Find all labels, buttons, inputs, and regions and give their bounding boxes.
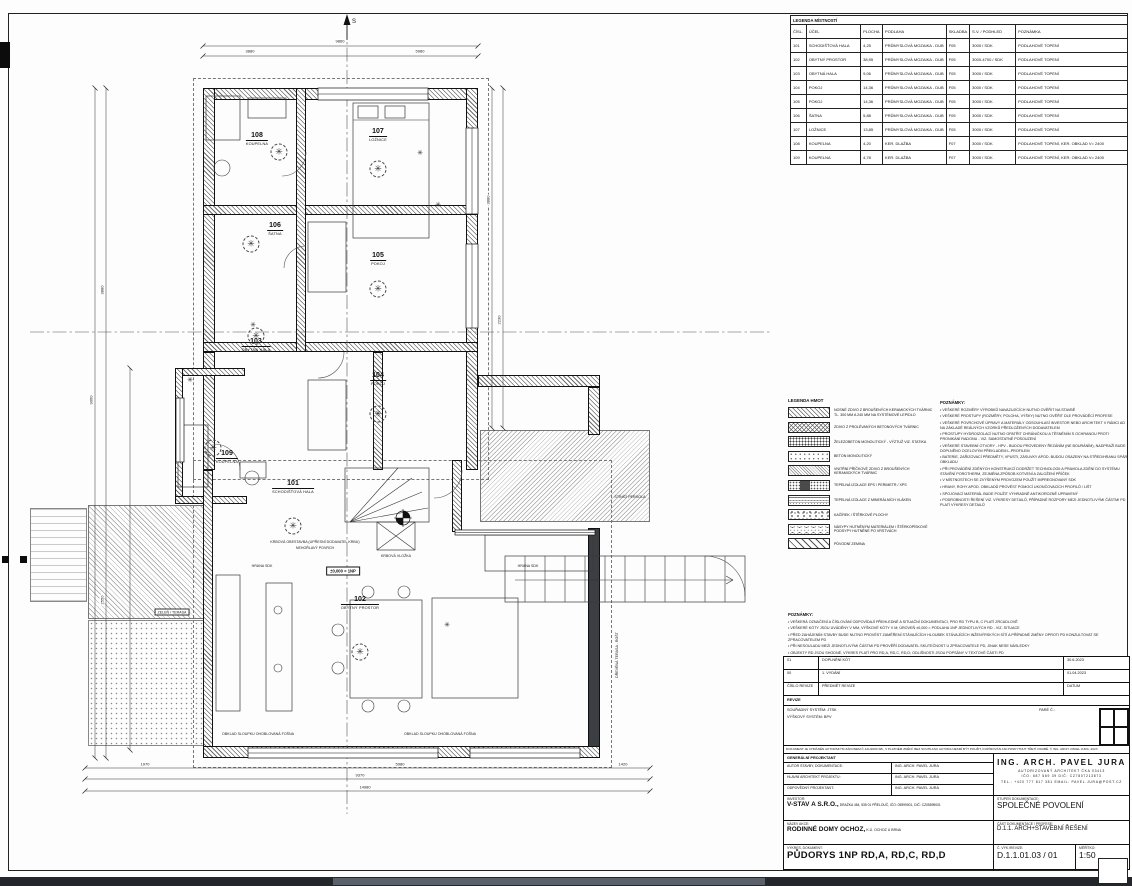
dimension-label: 5980 xyxy=(415,49,426,54)
revision-row: 001. VYDÁNÍ01.04.2023 xyxy=(784,670,1129,683)
legend-cell: PODLAHOVÉ TOPENÍ xyxy=(1016,81,1128,95)
drawing-row: VÝKRES, DOKUMENT: PŮDORYS 1NP RD,A, RD,C… xyxy=(784,845,1129,869)
legend-cell: PODLAHOVÉ TOPENÍ xyxy=(1016,67,1128,81)
legend-cell: PRŮMYSLOVÁ MOZAIKA - DUB xyxy=(883,39,947,53)
role-row: ODPOVĚDNÝ PROJEKTANT:ING. ARCH. PAVEL JU… xyxy=(784,785,994,796)
legend-cell: OBYTNÝ PROSTOR xyxy=(806,53,860,67)
material-legend-item: NÁSYPY HUTNĚNÝM MATERIÁLEM / ŠTĚRKOPÍSKO… xyxy=(788,524,936,535)
architect-title: AUTORIZOVANÝ ARCHITEKT ČKA 03413 xyxy=(997,769,1126,773)
legend-cell: PRŮMYSLOVÁ MOZAIKA - DUB xyxy=(883,67,947,81)
note-line: • PŘI NESOULADU MEZI JEDNOTLIVÝMI ČÁSTMI… xyxy=(788,644,1104,649)
material-label: NÁSYPY HUTNĚNÝM MATERIÁLEM / ŠTĚRKOPÍSKO… xyxy=(834,525,936,534)
room-name: KOUPELNA xyxy=(216,460,238,464)
dimension-label: 9370 xyxy=(355,773,366,778)
corner-box xyxy=(1098,858,1128,884)
room-legend-row: 105POKOJ14,36PRŮMYSLOVÁ MOZAIKA - DUBF05… xyxy=(791,95,1128,109)
legend-cell: F05 xyxy=(946,95,969,109)
legend-cell: SCHODIŠŤOVÁ HALA xyxy=(806,39,860,53)
plan-annotation: OBKLAD SLOUPKU OHOBLOVANÁ FOŠNA xyxy=(404,732,476,736)
architect-ids: IČO: 687 569 39 DIČ: CZ7807213873 xyxy=(997,774,1126,778)
legend-cell: 106 xyxy=(791,109,807,123)
survey-mark xyxy=(20,556,27,563)
dimension-label: 2230 xyxy=(497,315,502,326)
legend-cell: ŠATNA xyxy=(806,109,860,123)
material-legend-item: TEPELNÁ IZOLACE Z MINERÁLNÍCH VLÁKEN xyxy=(788,495,936,506)
architect-contact: TEL.: +420 777 817 381 EMAIL: PAVEL.JURA… xyxy=(997,780,1126,784)
plan-annotation: OBKLAD SLOUPKU OHOBLOVANÁ FOŠNA xyxy=(222,732,294,736)
room-label: 107LOŽNICE xyxy=(369,128,387,142)
legend-cell: PRŮMYSLOVÁ MOZAIKA - DUB xyxy=(883,95,947,109)
legend-cell: 104 xyxy=(791,81,807,95)
legend-cell: PRŮMYSLOVÁ MOZAIKA - DUB xyxy=(883,53,947,67)
role-label: AUTOR STAVBY, DOKUMENTACE: xyxy=(784,763,892,774)
material-label: VNITŘNÍ PŘÍČKOVÉ ZDIVO Z BROUŠENÝCH KERA… xyxy=(834,467,936,476)
coord-system: SOUŘADNÝ SYSTÉM: JTSK xyxy=(787,708,837,712)
material-legend-item: NOSNÉ ZDIVO Z BROUŠENÝCH KERAMICKÝCH TVÁ… xyxy=(788,407,936,418)
legend-cell: PODLAHOVÉ TOPENÍ, KER. OBKLAD V= 2400 xyxy=(1016,137,1128,151)
plan-annotation: STÍNÍCÍ PERGOLA xyxy=(614,495,645,499)
legend-cell: 4,25 xyxy=(861,39,883,53)
role-row: AUTOR STAVBY, DOKUMENTACE:ING. ARCH. PAV… xyxy=(784,763,994,774)
switch-symbol: ✳ xyxy=(250,321,256,329)
legend-col-header: SKLADBA xyxy=(946,25,969,39)
room-label: 106ŠATNA xyxy=(267,222,283,236)
material-legend-item: PŮVODNÍ ZEMINA xyxy=(788,538,936,549)
revision-date: 30.6.2023 xyxy=(1064,657,1129,670)
note-line: • PROSTUPY HYDROIZOLACÍ NUTNO OPATŘIT CH… xyxy=(940,432,1130,442)
revision-no: 01 xyxy=(784,657,819,670)
legend-cell: POKOJ xyxy=(806,81,860,95)
notes-right: POZNÁMKY: • VEŠKERÉ ROZMĚRY VÝROBKŮ NAVA… xyxy=(940,400,1130,510)
architect-stamp: ING. ARCH. PAVEL JURA AUTORIZOVANÝ ARCHI… xyxy=(994,754,1129,796)
plan-annotation: KRBOVÁ VLOŽKA xyxy=(381,554,411,558)
switch-symbol: ✳ xyxy=(435,201,441,209)
material-legend: LEGENDA HMOT NOSNÉ ZDIVO Z BROUŠENÝCH KE… xyxy=(788,398,936,553)
legend-cell: F05 xyxy=(946,53,969,67)
material-swatch xyxy=(788,465,830,476)
legend-col-header: S.V. / PODHLED xyxy=(970,25,1016,39)
dimension-label: 9860 xyxy=(335,39,346,44)
legend-cell: 14,36 xyxy=(861,95,883,109)
material-legend-item: ŽELEZOBETON MONOLITICKÝ - VÝZTUŽ VIZ. ST… xyxy=(788,436,936,447)
note-line: • VEŠKERÉ STAVEBNÍ OTVORY - HPV - BUDOU … xyxy=(940,444,1130,454)
ceiling-light-symbol: ✳ xyxy=(370,281,387,298)
legend-cell: 107 xyxy=(791,123,807,137)
legend-title-row: LEGENDA MÍSTNOSTÍ xyxy=(791,16,1128,25)
revision-row: ČÍSLO REVIZEPŘEDMĚT REVIZEDATUM xyxy=(784,683,1129,696)
legend-cell: KER. DLAŽBA xyxy=(883,151,947,165)
pare-grid xyxy=(1099,708,1129,746)
svg-text:S: S xyxy=(352,19,356,25)
role-value: ING. ARCH. PAVEL JURA xyxy=(892,774,994,785)
switch-symbol: ✳ xyxy=(417,149,423,157)
material-label: ZDIVO Z PROLÉVANÝCH BETONOVÝCH TVÁRNIC xyxy=(834,425,919,429)
room-name: KOUPELNA xyxy=(246,142,268,146)
room-legend-row: 107LOŽNICE13,85PRŮMYSLOVÁ MOZAIKA - DUBF… xyxy=(791,123,1128,137)
legend-cell: 105 xyxy=(791,95,807,109)
role-label: HLAVNÍ ARCHITEKT PROJEKTU: xyxy=(784,774,892,785)
ceiling-light-symbol: ✳ xyxy=(370,406,387,423)
material-label: NOSNÉ ZDIVO Z BROUŠENÝCH KERAMICKÝCH TVÁ… xyxy=(834,408,936,417)
room-number: 101 xyxy=(272,480,314,489)
legend-cell: PRŮMYSLOVÁ MOZAIKA - DUB xyxy=(883,109,947,123)
material-legend-item: ZDIVO Z PROLÉVANÝCH BETONOVÝCH TVÁRNIC xyxy=(788,422,936,433)
project-detail: K.Ú. OCHOZ U BRNA xyxy=(866,828,901,832)
legend-cell: 3000 / SDK xyxy=(970,81,1016,95)
room-name: OBYTNÝ PROSTOR xyxy=(341,606,379,610)
legend-header-row: ČÍSL.ÚČELPLOCHAPODLAHASKLADBAS.V. / PODH… xyxy=(791,25,1128,39)
plan-annotation: KRBOVÁ OBESTAVBA (UPŘESNÍ DODAVATEL KRBU… xyxy=(270,540,359,544)
legend-cell: F07 xyxy=(946,151,969,165)
legend-cell: F05 xyxy=(946,39,969,53)
drawing-number: D.1.1.01.03 / 01 xyxy=(997,850,1058,860)
legend-cell: POKOJ xyxy=(806,95,860,109)
note-line: • V MÍSTNOSTECH SE ZVÝŠENÝM PROVOZEM POU… xyxy=(940,478,1130,483)
title-block: 01DOPLNĚNÍ KÓT30.6.2023001. VYDÁNÍ01.04.… xyxy=(783,656,1130,870)
ceiling-light-symbol: ✳ xyxy=(285,518,302,535)
legend-col-header: PODLAHA xyxy=(883,25,947,39)
plan-annotation: HRANA SDK xyxy=(518,564,539,568)
room-label: 104POKOJ xyxy=(370,372,386,386)
drawing-title: PŮDORYS 1NP RD,A, RD,C, RD,D xyxy=(787,850,946,861)
legend-cell: F05 xyxy=(946,109,969,123)
room-legend-row: 101SCHODIŠŤOVÁ HALA4,25PRŮMYSLOVÁ MOZAIK… xyxy=(791,39,1128,53)
project-name: RODINNÉ DOMY OCHOZ, xyxy=(787,826,865,833)
legend-cell: 3000 / SDK xyxy=(970,109,1016,123)
architect-name: ING. ARCH. PAVEL JURA xyxy=(997,758,1126,767)
room-legend-row: 102OBYTNÝ PROSTOR38,95PRŮMYSLOVÁ MOZAIKA… xyxy=(791,53,1128,67)
material-swatch xyxy=(788,509,830,520)
role-value: ING. ARCH. PAVEL JURA xyxy=(892,785,994,796)
material-label: TEPELNÁ IZOLACE Z MINERÁLNÍCH VLÁKEN xyxy=(834,498,911,502)
ceiling-light-symbol: ✳ xyxy=(370,161,387,178)
pare-label: PARÉ Č.: xyxy=(1039,708,1055,712)
legend-cell: PODLAHOVÉ TOPENÍ xyxy=(1016,53,1128,67)
room-label: 103OBYTNÁ HALA xyxy=(242,338,271,352)
legend-cell: PODLAHOVÉ TOPENÍ xyxy=(1016,123,1128,137)
dimension-label: 5980 xyxy=(395,762,406,767)
legend-cell: PODLAHOVÉ TOPENÍ xyxy=(1016,39,1128,53)
revision-subject: PŘEDMĚT REVIZE xyxy=(819,683,1064,696)
material-swatch xyxy=(788,524,830,535)
dimension-label: 9060 xyxy=(89,395,94,406)
legend-cell: 14,36 xyxy=(861,81,883,95)
revize-band: REVIZE xyxy=(784,696,1129,706)
note-line: • SPOJOVACÍ MATERIÁL BUDE POUŽIT VÝHRADN… xyxy=(940,492,1130,497)
material-swatch xyxy=(788,422,830,433)
legend-cell: KOUPELNA xyxy=(806,137,860,151)
material-swatch xyxy=(788,407,830,418)
note-line: • BATERIE, ZAŘIZOVACÍ PŘEDMĚTY, VPUSTI, … xyxy=(940,455,1130,465)
legend-cell: 3000 / SDK xyxy=(970,39,1016,53)
room-number: 104 xyxy=(370,372,386,381)
material-label: BETON MONOLITICKÝ xyxy=(834,454,872,458)
legend-cell: 9,06 xyxy=(861,67,883,81)
legend-cell: PODLAHOVÉ TOPENÍ, KER. OBKLAD V= 2400 xyxy=(1016,151,1128,165)
legend-cell: F05 xyxy=(946,123,969,137)
investor-row: INVESTOR: V-STAV A S.R.O., DRAŽKA 454, 5… xyxy=(784,796,1129,821)
legend-cell: F07 xyxy=(946,137,969,151)
dimension-label: 14980 xyxy=(358,785,371,790)
material-swatch xyxy=(788,436,830,447)
note-line: • VEŠKERÉ ROZMĚRY VÝROBKŮ NAVAZUJÍCÍCH N… xyxy=(940,408,1130,413)
legend-cell: F05 xyxy=(946,81,969,95)
room-legend-table: LEGENDA MÍSTNOSTÍČÍSL.ÚČELPLOCHAPODLAHAS… xyxy=(790,15,1128,165)
legend-title: LEGENDA MÍSTNOSTÍ xyxy=(791,16,1128,25)
plan-annotation: DŘEVĚNÁ TERASA - ROŠT xyxy=(615,632,619,678)
drawing-cell: VÝKRES, DOKUMENT: PŮDORYS 1NP RD,A, RD,C… xyxy=(784,845,994,869)
legend-cell: 101 xyxy=(791,39,807,53)
room-label: 109KOUPELNA xyxy=(216,450,238,464)
room-number: 105 xyxy=(370,252,386,261)
room-number: 108 xyxy=(246,132,268,141)
general-designer-band: GENERÁLNÍ PROJEKTANT xyxy=(784,754,994,763)
legend-cell: 3000-4700 / SDK xyxy=(970,53,1016,67)
material-swatch xyxy=(788,495,830,506)
material-legend-item: KAČÍREK / ŠTĚRKOVÉ PLOCHY xyxy=(788,509,936,520)
material-legend-item: TEPELNÁ IZOLACE EPS / PERIMETR / XPS xyxy=(788,480,936,491)
material-label: ŽELEZOBETON MONOLITICKÝ - VÝZTUŽ VIZ. ST… xyxy=(834,440,926,444)
notes-mid-title: POZNÁMKY: xyxy=(788,612,1104,617)
plan-linework: S xyxy=(0,0,780,886)
room-number: 107 xyxy=(369,128,387,137)
legend-cell: PODLAHOVÉ TOPENÍ xyxy=(1016,95,1128,109)
revision-date: DATUM xyxy=(1064,683,1129,696)
note-line: • VEŠKERÁ OZNAČENÍ A ČÍSLOVÁNÍ ODPOVÍDAJ… xyxy=(788,620,1104,625)
revision-subject: DOPLNĚNÍ KÓT xyxy=(819,657,1064,670)
revision-no: 00 xyxy=(784,670,819,683)
material-label: PŮVODNÍ ZEMINA xyxy=(834,542,865,546)
project-cell: NÁZEV AKCE: RODINNÉ DOMY OCHOZ, K.Ú. OCH… xyxy=(784,821,994,845)
note-line: • PŘED ZAHÁJENÍM STAVBY BUDE NUTNO PROVÉ… xyxy=(788,633,1104,643)
drawing-canvas: S 101SCHODIŠŤOVÁ HALA✳102OBYTNÝ PROSTOR✳… xyxy=(0,0,1132,886)
room-name: SCHODIŠŤOVÁ HALA xyxy=(272,490,314,494)
note-line: • PŘI PROVÁDĚNÍ ZDĚNÝCH KONSTRUKCÍ DODRŽ… xyxy=(940,467,1130,477)
legend-cell: 108 xyxy=(791,137,807,151)
room-label: 101SCHODIŠŤOVÁ HALA xyxy=(272,480,314,494)
legend-col-header: PLOCHA xyxy=(861,25,883,39)
legend-cell: KER. DLAŽBA xyxy=(883,137,947,151)
switch-symbol: ✳ xyxy=(444,621,450,629)
legend-cell: 4,78 xyxy=(861,151,883,165)
dimension-label: 3880 xyxy=(245,49,256,54)
legend-cell: 102 xyxy=(791,53,807,67)
revision-no: ČÍSLO REVIZE xyxy=(784,683,819,696)
legend-cell: 3000 / SDK xyxy=(970,95,1016,109)
role-row: HLAVNÍ ARCHITEKT PROJEKTU:ING. ARCH. PAV… xyxy=(784,774,994,785)
part-value: D.1.1. ARCH+STAVEBNÍ ŘEŠENÍ xyxy=(997,826,1088,832)
room-label: 108KOUPELNA xyxy=(246,132,268,146)
investor-detail: DRAŽKA 454, 535 01 PŘELOUČ, IČO: 0559900… xyxy=(840,803,941,807)
dimension-label: 3880 xyxy=(486,195,491,206)
legend-col-header: ÚČEL xyxy=(806,25,860,39)
plan-annotation: NEHOŘLAVÝ POVRCH xyxy=(296,546,334,550)
dimension-label: 2550 xyxy=(100,595,105,606)
legend-cell: 3000 / SDK xyxy=(970,151,1016,165)
note-line: • VEŠKERÉ KÓTY JSOU UVÁDĚNY V MM, VÝŠKOV… xyxy=(788,626,1104,631)
material-swatch xyxy=(788,480,830,491)
room-label: 102OBYTNÝ PROSTOR xyxy=(341,596,379,610)
legend-col-header: ČÍSL. xyxy=(791,25,807,39)
survey-mark xyxy=(2,556,9,563)
project-row: NÁZEV AKCE: RODINNÉ DOMY OCHOZ, K.Ú. OCH… xyxy=(784,821,1129,845)
level-label: ±0,000 = 1NP xyxy=(326,567,360,576)
stage-value: SPOLEČNÉ POVOLENÍ xyxy=(997,801,1084,810)
plan-annotation: ZELEŇ / TERASA xyxy=(155,609,190,616)
systems-row: SOUŘADNÝ SYSTÉM: JTSK VÝŠKOVÝ SYSTÉM: BP… xyxy=(784,706,1129,746)
legend-col-header: POZNÁMKA xyxy=(1016,25,1128,39)
revision-row: 01DOPLNĚNÍ KÓT30.6.2023 xyxy=(784,657,1129,670)
material-legend-title: LEGENDA HMOT xyxy=(788,398,936,403)
legend-cell: 3000 / SDK xyxy=(970,123,1016,137)
room-number: 103 xyxy=(242,338,271,347)
role-label: ODPOVĚDNÝ PROJEKTANT: xyxy=(784,785,892,796)
room-name: POKOJ xyxy=(370,382,386,386)
material-legend-item: VNITŘNÍ PŘÍČKOVÉ ZDIVO Z BROUŠENÝCH KERA… xyxy=(788,465,936,476)
legend-cell: PODLAHOVÉ TOPENÍ xyxy=(1016,109,1128,123)
room-number: 106 xyxy=(267,222,283,231)
material-label: KAČÍREK / ŠTĚRKOVÉ PLOCHY xyxy=(834,513,888,517)
part-cell: ČÁST DOKUMENTACE / PROFESE: D.1.1. ARCH+… xyxy=(994,821,1129,845)
notes-right-title: POZNÁMKY: xyxy=(940,400,1130,405)
revision-subject: 1. VYDÁNÍ xyxy=(819,670,1064,683)
plan-annotation: HRANA SDK xyxy=(252,564,273,568)
room-name: ŠATNA xyxy=(267,232,283,236)
legend-cell: 13,85 xyxy=(861,123,883,137)
role-value: ING. ARCH. PAVEL JURA xyxy=(892,763,994,774)
material-swatch xyxy=(788,538,830,549)
legend-cell: 5,88 xyxy=(861,109,883,123)
stage-cell: STUPEŇ DOKUMENTACE: SPOLEČNÉ POVOLENÍ xyxy=(994,796,1129,821)
room-label: 105POKOJ xyxy=(370,252,386,266)
legend-cell: PRŮMYSLOVÁ MOZAIKA - DUB xyxy=(883,123,947,137)
legend-cell: 38,95 xyxy=(861,53,883,67)
switch-symbol: ✳ xyxy=(187,376,193,384)
copyright-line: DOKUMENT JE CHRÁNĚN AUTORSKÝM ZÁKONEM Č.… xyxy=(784,746,1129,754)
legend-cell: 3000 / SDK xyxy=(970,137,1016,151)
material-label: TEPELNÁ IZOLACE EPS / PERIMETR / XPS xyxy=(834,483,907,487)
dimension-label: 1970 xyxy=(140,762,151,767)
room-legend-row: 109KOUPELNA4,78KER. DLAŽBAF073000 / SDKP… xyxy=(791,151,1128,165)
note-line: • VEŠKERÉ PROSTUPY (ROZMĚRY, POLOHA, VÝŠ… xyxy=(940,414,1130,419)
room-name: POKOJ xyxy=(370,262,386,266)
room-legend-row: 104POKOJ14,36PRŮMYSLOVÁ MOZAIKA - DUBF05… xyxy=(791,81,1128,95)
legend-cell: 103 xyxy=(791,67,807,81)
room-legend-row: 108KOUPELNA4,20KER. DLAŽBAF073000 / SDKP… xyxy=(791,137,1128,151)
room-number: 102 xyxy=(341,596,379,605)
room-name: OBYTNÁ HALA xyxy=(242,348,271,352)
material-legend-item: BETON MONOLITICKÝ xyxy=(788,451,936,462)
legend-cell: LOŽNICE xyxy=(806,123,860,137)
legend-cell: F05 xyxy=(946,67,969,81)
ceiling-light-symbol: ✳ xyxy=(271,144,288,161)
height-system: VÝŠKOVÝ SYSTÉM: BPV xyxy=(787,715,832,719)
legend-cell: 4,20 xyxy=(861,137,883,151)
material-swatch xyxy=(788,451,830,462)
room-name: LOŽNICE xyxy=(369,138,387,142)
legend-cell: 109 xyxy=(791,151,807,165)
legend-cell: KOUPELNA xyxy=(806,151,860,165)
room-number: 109 xyxy=(216,450,238,459)
note-line: • PODROBNOSTI ŘEŠENÍ VIZ. VÝKRESY DETAIL… xyxy=(940,498,1130,508)
legend-cell: 3000 / SDK xyxy=(970,67,1016,81)
dimension-label: 3880 xyxy=(100,285,105,296)
room-legend-row: 103OBYTNÁ HALA9,06PRŮMYSLOVÁ MOZAIKA - D… xyxy=(791,67,1128,81)
investor-cell: INVESTOR: V-STAV A S.R.O., DRAŽKA 454, 5… xyxy=(784,796,994,821)
ceiling-light-symbol: ✳ xyxy=(352,644,369,661)
ceiling-light-symbol: ✳ xyxy=(243,236,260,253)
dimension-label: 1420 xyxy=(618,762,629,767)
floor-plan: S 101SCHODIŠŤOVÁ HALA✳102OBYTNÝ PROSTOR✳… xyxy=(0,0,780,886)
note-line: • HRANY, ROHY APOD. OBKLADŮ PROVÉST POMO… xyxy=(940,485,1130,490)
revision-date: 01.04.2023 xyxy=(1064,670,1129,683)
investor-name: V-STAV A S.R.O., xyxy=(787,801,839,808)
legend-cell: PRŮMYSLOVÁ MOZAIKA - DUB xyxy=(883,81,947,95)
legend-cell: OBYTNÁ HALA xyxy=(806,67,860,81)
note-line: • VEŠKERÉ POVRCHOVÉ ÚPRAVY A MATERIÁLY O… xyxy=(940,421,1130,431)
room-legend-row: 106ŠATNA5,88PRŮMYSLOVÁ MOZAIKA - DUBF053… xyxy=(791,109,1128,123)
number-cell: Č. VÝK./REVIZE: D.1.1.01.03 / 01 xyxy=(994,845,1076,869)
scale-value: 1:50 xyxy=(1079,850,1096,860)
